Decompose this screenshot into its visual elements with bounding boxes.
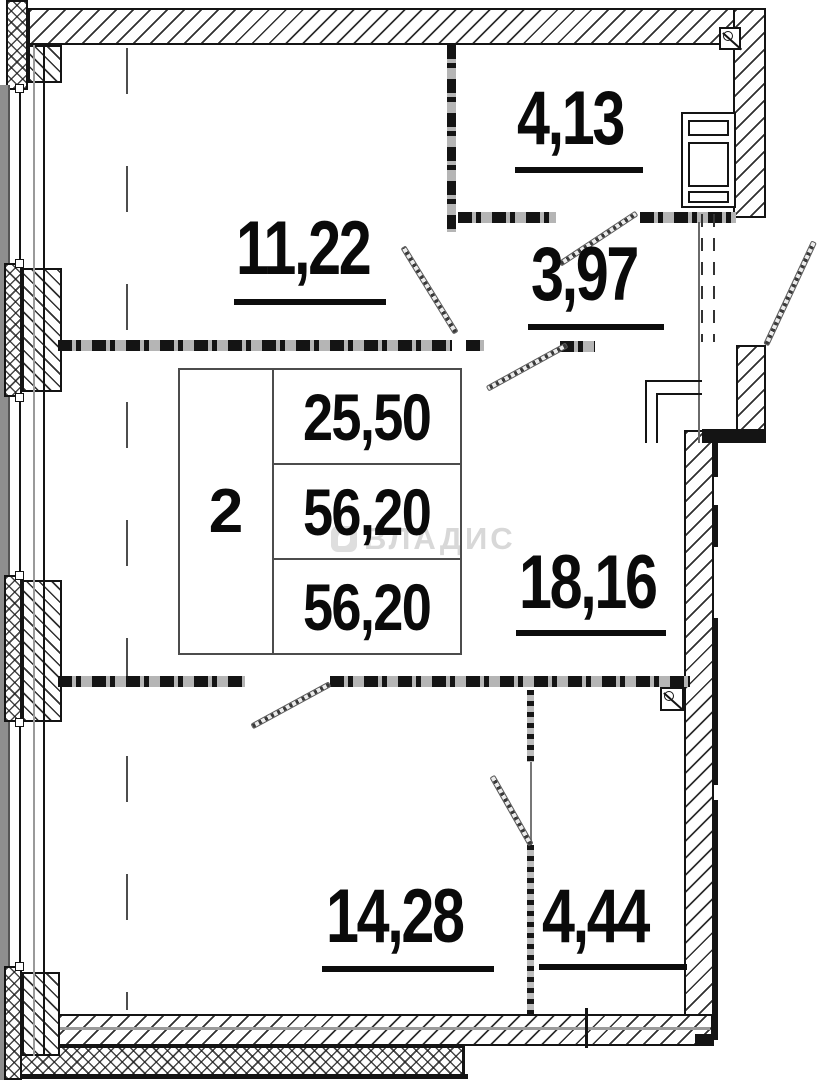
bottom-right-corner-block bbox=[695, 1034, 713, 1046]
neighbour-wall-2 bbox=[712, 505, 718, 547]
bottom-band-divider bbox=[585, 1008, 588, 1048]
partition-bath-bottom-right bbox=[640, 212, 736, 223]
room-underline-11-22 bbox=[234, 299, 386, 305]
window-2 bbox=[19, 397, 21, 575]
total-area-value: 56,20 bbox=[303, 474, 430, 550]
neighbour-wall-1 bbox=[712, 433, 718, 477]
room-underline-4-13 bbox=[515, 167, 643, 173]
window-joint-5 bbox=[15, 718, 24, 727]
window-joint-6 bbox=[15, 962, 24, 971]
partition-bath-bottom-left bbox=[458, 212, 556, 223]
window-3 bbox=[19, 722, 21, 966]
glazing-line-inner bbox=[43, 45, 45, 1056]
floor-plan-canvas: ВЛАДИС 2 25,50 56,20 56,20 11,22 4,13 3,… bbox=[0, 0, 820, 1080]
partition-middle-right bbox=[330, 676, 690, 687]
room-underline-4-44 bbox=[539, 964, 687, 970]
table-row: 56,20 bbox=[274, 465, 460, 560]
window-joint-1 bbox=[15, 84, 24, 93]
pier-b-outer bbox=[4, 263, 22, 397]
room-label-4-44: 4,44 bbox=[542, 879, 648, 955]
door-frame-line bbox=[530, 762, 532, 845]
living-area-value: 25,50 bbox=[303, 379, 430, 455]
table-row: 56,20 bbox=[274, 560, 460, 653]
room-underline-3-97 bbox=[528, 324, 664, 330]
wall-right-entry-pier bbox=[736, 345, 766, 438]
entry-dashed-line-1 bbox=[701, 214, 703, 342]
bottom-step-joint bbox=[462, 1046, 465, 1078]
niche-step-left bbox=[656, 393, 658, 443]
corner-top-left-outer bbox=[6, 0, 28, 90]
room-underline-18-16 bbox=[516, 630, 666, 636]
room-label-14-28: 14,28 bbox=[326, 879, 463, 955]
door-future-room bbox=[489, 775, 533, 847]
window-1 bbox=[19, 88, 21, 263]
vent-icon-wc bbox=[660, 687, 684, 711]
area-summary-table: 2 25,50 56,20 56,20 bbox=[178, 368, 462, 655]
pier-c-outer bbox=[4, 575, 22, 722]
table-row: 25,50 bbox=[274, 370, 460, 465]
door-entrance bbox=[763, 240, 817, 346]
partition-room1-bottom bbox=[58, 340, 452, 351]
wall-bottom bbox=[58, 1014, 713, 1046]
wall-bottom-midline bbox=[60, 1027, 710, 1030]
window-joint-3 bbox=[15, 393, 24, 402]
room-label-18-16: 18,16 bbox=[519, 545, 656, 621]
window-joint-4 bbox=[15, 571, 24, 580]
wall-right-lower bbox=[684, 430, 714, 1046]
niche-top bbox=[645, 380, 702, 382]
partition-future-lower bbox=[527, 845, 534, 1015]
door-hall-middle bbox=[486, 342, 569, 391]
vent-icon-bath bbox=[719, 27, 741, 50]
boiler-body bbox=[688, 142, 729, 187]
wall-bottom-left-edge bbox=[18, 1074, 468, 1079]
wall-top bbox=[28, 8, 766, 45]
boiler-top bbox=[688, 120, 729, 136]
room-underline-14-28 bbox=[322, 966, 494, 972]
partition-room1-bottom-stub bbox=[466, 340, 484, 351]
door-room1 bbox=[401, 245, 459, 334]
glazing-line-outer bbox=[33, 45, 35, 1056]
pier-c-inner bbox=[22, 580, 62, 722]
overall-area-value: 56,20 bbox=[303, 569, 430, 645]
pier-d-inner bbox=[22, 972, 60, 1056]
room-label-3-97: 3,97 bbox=[531, 237, 637, 313]
rooms-count: 2 bbox=[209, 476, 243, 547]
entry-dashed-line-2 bbox=[713, 214, 715, 342]
neighbour-wall-4 bbox=[712, 800, 718, 1040]
partition-room1-hall bbox=[447, 45, 456, 232]
entry-wall-edge bbox=[698, 222, 700, 443]
room-label-4-13: 4,13 bbox=[517, 81, 623, 157]
niche-step-top bbox=[656, 393, 702, 395]
door-middle-bottom bbox=[250, 681, 331, 729]
rooms-count-cell: 2 bbox=[180, 370, 274, 653]
niche-left bbox=[645, 380, 647, 443]
window-joint-2 bbox=[15, 259, 24, 268]
partition-middle-left bbox=[58, 676, 245, 687]
partition-future-upper bbox=[527, 690, 534, 762]
pier-d-outer bbox=[4, 966, 22, 1080]
pier-b-inner bbox=[22, 268, 62, 392]
room-label-11-22: 11,22 bbox=[236, 211, 369, 287]
neighbour-wall-3 bbox=[712, 618, 718, 785]
facade-dashed-line bbox=[126, 48, 128, 1010]
areas-column: 25,50 56,20 56,20 bbox=[274, 370, 460, 653]
boiler-bottom bbox=[688, 191, 729, 203]
